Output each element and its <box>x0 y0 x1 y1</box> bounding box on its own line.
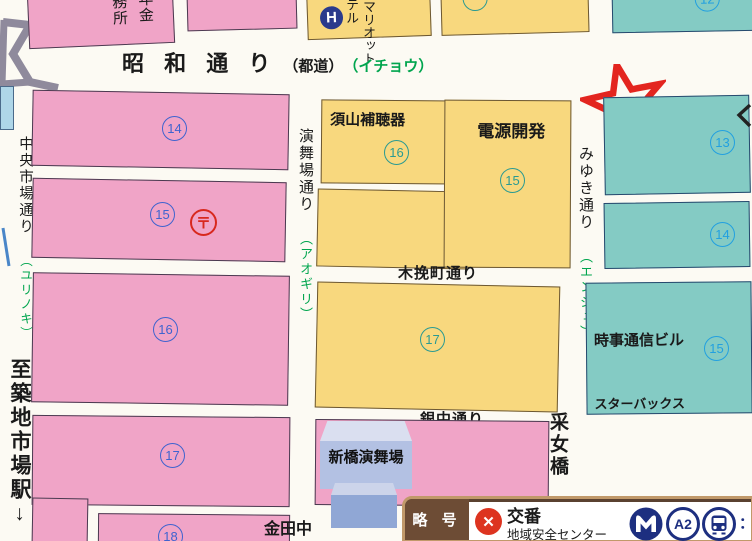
map-canvas: 務所 年金 H テル マリオット 12 昭 和 通 り （都道） （イチョウ） … <box>0 0 752 541</box>
block-number-badge: 14 <box>710 222 735 247</box>
block-number-badge: 16 <box>153 317 178 342</box>
block-pink-14 <box>31 90 289 170</box>
exit-number-label: A2 <box>674 516 692 532</box>
station-icon <box>702 507 736 541</box>
to-tsukiji-station-label: 至築地市場駅↓ <box>4 358 34 528</box>
building-suyama-label: 須山補聴器 <box>330 108 405 130</box>
hotel-icon-letter: H <box>326 9 337 26</box>
block-teal-12: 12 <box>612 0 752 33</box>
theatre-annex-roof <box>331 483 397 495</box>
legend-title-band: 略 号 <box>405 499 469 540</box>
block-number-badge: 15 <box>500 168 525 193</box>
koban-icon: ✕ <box>475 508 502 535</box>
building-starbucks-label: スターバックス <box>594 393 685 413</box>
street-embujo-label: 演舞場通り （アオギリ） <box>295 128 316 322</box>
building-dengen-label: 電源開発 <box>477 117 545 142</box>
building-jiji-label: 時事通信ビル <box>594 329 684 351</box>
block-pink-bottom-sliver <box>32 498 89 541</box>
block-number-badge: 13 <box>710 130 735 155</box>
block-pink-18 <box>98 513 290 541</box>
block-top-2 <box>187 0 298 31</box>
street-edge-line <box>0 226 12 268</box>
street-showa-label: 昭 和 通 り （都道） （イチョウ） <box>122 46 433 78</box>
street-name: 昭 和 通 り <box>122 46 277 78</box>
street-kobikicho-label: 木挽町通り <box>398 262 478 283</box>
tree-name-icho: （イチョウ） <box>343 55 433 78</box>
tree-name-aogiri: （アオギリ） <box>298 232 313 322</box>
left-arrow-icon <box>735 103 752 129</box>
legend-colon: ： <box>739 512 752 533</box>
tree-name-yurinoki: （ユリノキ） <box>18 254 32 341</box>
block-number-badge-partial <box>462 0 488 11</box>
hotel-icon: H <box>320 6 344 30</box>
street-type: （都道） <box>283 55 343 78</box>
block-top-3 <box>440 0 589 36</box>
block-number-badge: 17 <box>420 327 445 352</box>
block-number-badge: 15 <box>150 202 175 227</box>
pension-office-label-right: 年金 <box>134 0 156 24</box>
legend-anzen-label: 地域安全センター <box>507 524 607 541</box>
koban-x-symbol: ✕ <box>482 513 495 531</box>
theatre-shimbashi-label: 新橋演舞場 <box>320 446 412 467</box>
legend-box: 略 号 ✕ 交番 地域安全センター A2 ： <box>402 496 752 541</box>
post-office-symbol: 〒 <box>196 212 211 233</box>
landmark-kanetanaka-label: 金田中 <box>264 515 312 539</box>
block-pension-office: 務所 年金 <box>27 0 175 49</box>
block-number-badge: 14 <box>162 116 187 141</box>
block-lightblue-sliver <box>0 86 14 130</box>
metro-logo-icon <box>629 507 663 541</box>
block-number-badge: 15 <box>704 336 729 361</box>
theatre-annex-body <box>331 495 397 528</box>
block-number-badge: 12 <box>695 0 720 12</box>
street-name: 演舞場通り <box>297 128 314 213</box>
theatre-building-roof <box>320 421 412 441</box>
post-office-icon: 〒 <box>190 209 217 236</box>
pension-office-label-left: 務所 <box>108 0 130 27</box>
block-number-badge: 16 <box>384 140 409 165</box>
exit-number-badge: A2 <box>666 507 700 541</box>
street-name: みゆき通り <box>577 146 594 231</box>
legend-title: 略 号 <box>412 509 461 530</box>
street-name: 中央市場通り <box>17 136 33 235</box>
block-number-badge: 17 <box>160 443 185 468</box>
